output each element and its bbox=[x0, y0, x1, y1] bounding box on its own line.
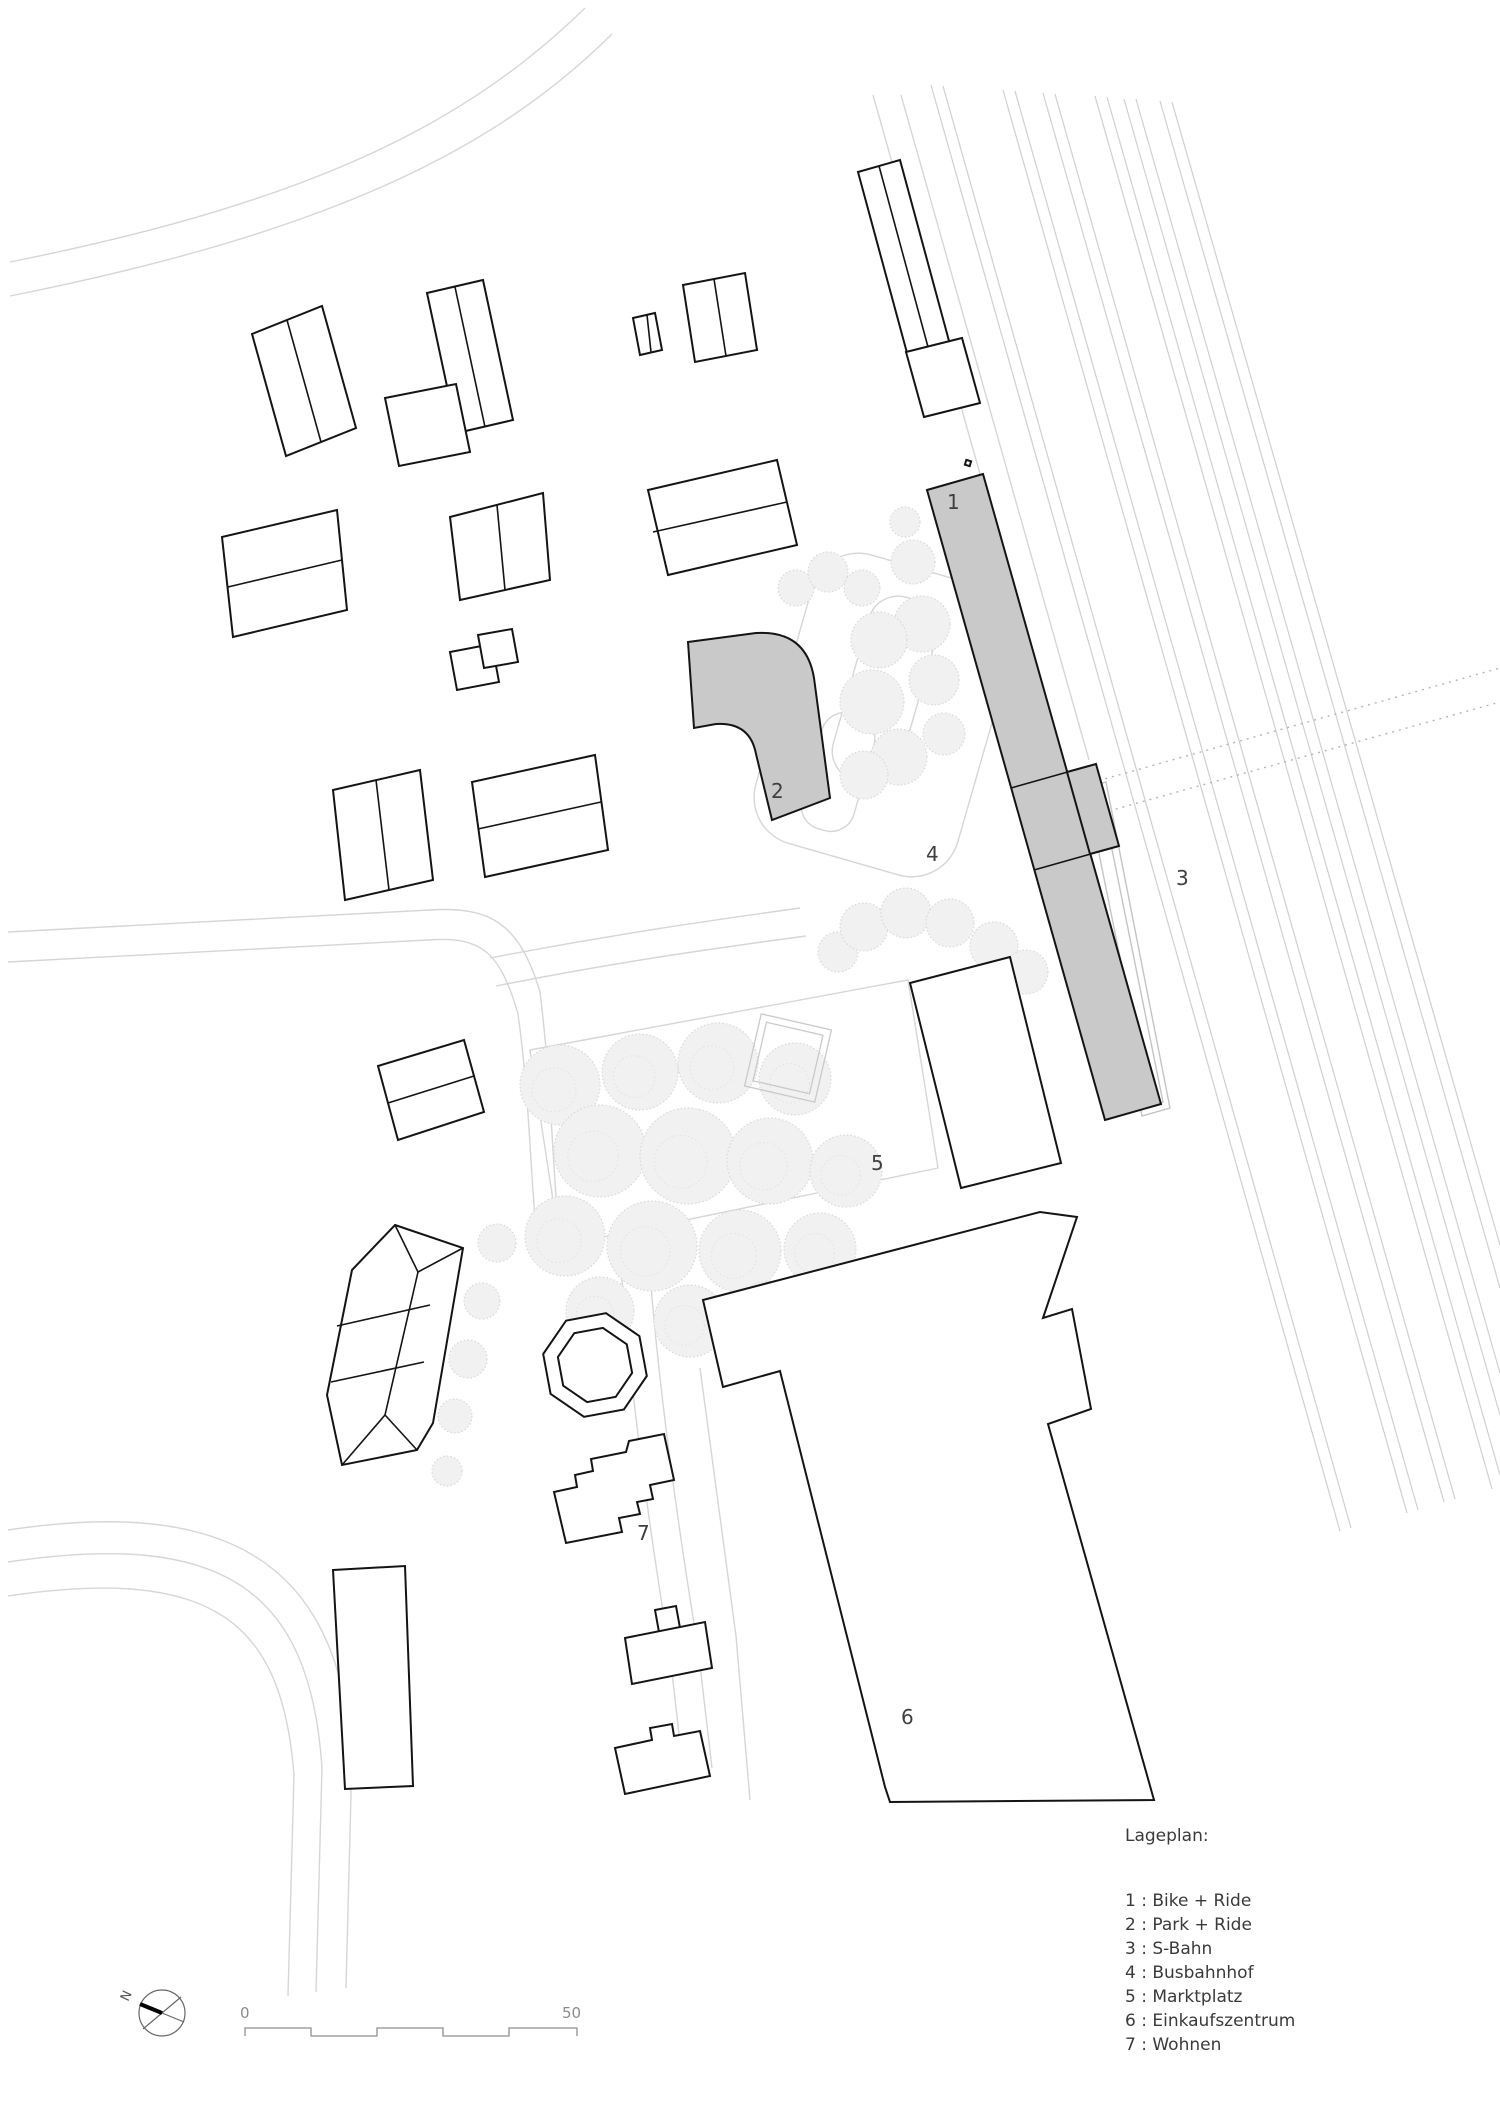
tree-icon bbox=[640, 1108, 736, 1204]
tree-icon bbox=[432, 1456, 462, 1486]
dotted-crossing-line bbox=[1055, 702, 1500, 826]
tree-icon bbox=[699, 1210, 781, 1292]
tree-icon bbox=[727, 1118, 813, 1204]
site-plan-svg: 1 2 3 4 5 6 7 N 0 50 bbox=[0, 0, 1500, 2122]
legend-item-marktplatz: 5 : Marktplatz bbox=[1125, 1985, 1295, 2009]
building-park-ride bbox=[688, 633, 830, 820]
scale-bar: 0 50 bbox=[240, 2004, 581, 2036]
building-outline bbox=[625, 1622, 712, 1684]
legend-item-einkaufszentrum: 6 : Einkaufszentrum bbox=[1125, 2009, 1295, 2033]
octagon-pavilion bbox=[543, 1313, 647, 1417]
legend-item-wohnen: 7 : Wohnen bbox=[1125, 2033, 1295, 2057]
tree-icon bbox=[478, 1224, 516, 1262]
building-outline bbox=[615, 1724, 710, 1794]
tree-icon bbox=[923, 713, 965, 755]
plan-label-1: 1 bbox=[947, 490, 960, 514]
building-einkaufszentrum bbox=[703, 1212, 1154, 1802]
scale-end-label: 50 bbox=[562, 2004, 581, 2022]
scale-start-label: 0 bbox=[240, 2004, 250, 2022]
tree-icon bbox=[840, 751, 888, 799]
building-outline bbox=[478, 629, 518, 668]
tree-icon bbox=[464, 1283, 500, 1319]
north-needle-icon bbox=[140, 2004, 162, 2013]
tree-icon bbox=[851, 612, 907, 668]
building-hipped-roof bbox=[327, 1225, 463, 1465]
north-label: N bbox=[118, 1989, 136, 2004]
point-marker bbox=[965, 460, 971, 466]
tree-icon bbox=[449, 1340, 487, 1378]
plan-label-5: 5 bbox=[871, 1151, 884, 1175]
building-outline bbox=[906, 338, 980, 417]
plan-label-2: 2 bbox=[771, 779, 784, 803]
tree-icon bbox=[840, 903, 888, 951]
plan-label-7: 7 bbox=[637, 1521, 650, 1545]
legend-item-sbahn: 3 : S-Bahn bbox=[1125, 1937, 1295, 1961]
tree-icon bbox=[926, 899, 974, 947]
plan-label-3: 3 bbox=[1176, 866, 1189, 890]
tree-icon bbox=[909, 655, 959, 705]
plan-label-4: 4 bbox=[926, 842, 939, 866]
plan-label-6: 6 bbox=[901, 1705, 914, 1729]
tree-icon bbox=[678, 1023, 758, 1103]
building-outline bbox=[450, 493, 550, 600]
building-wohnen bbox=[554, 1434, 674, 1543]
legend: Lageplan: 1 : Bike + Ride 2 : Park + Rid… bbox=[1125, 1826, 1295, 2057]
legend-heading: Lageplan: bbox=[1125, 1826, 1295, 1846]
legend-item-bike-ride: 1 : Bike + Ride bbox=[1125, 1889, 1295, 1913]
site-plan-canvas: 1 2 3 4 5 6 7 N 0 50 Lageplan: 1 : Bike … bbox=[0, 0, 1500, 2122]
tree-icon bbox=[840, 670, 904, 734]
building-outline bbox=[385, 384, 470, 466]
tree-icon bbox=[891, 540, 935, 584]
tree-icon bbox=[525, 1196, 605, 1276]
tree-icon bbox=[808, 552, 848, 592]
tree-icon bbox=[554, 1105, 646, 1197]
tree-icon bbox=[607, 1201, 697, 1291]
building-outline bbox=[333, 1566, 413, 1789]
building-outline bbox=[910, 957, 1061, 1188]
tree-icon bbox=[438, 1399, 472, 1433]
tree-icon bbox=[890, 507, 920, 537]
dotted-crossing-line bbox=[1058, 668, 1500, 792]
legend-item-park-ride: 2 : Park + Ride bbox=[1125, 1913, 1295, 1937]
tree-icon bbox=[881, 888, 931, 938]
north-arrow: N bbox=[118, 1989, 185, 2036]
building-outline bbox=[648, 460, 797, 575]
tree-icon bbox=[844, 570, 880, 606]
legend-item-busbahnhof: 4 : Busbahnhof bbox=[1125, 1961, 1295, 1985]
